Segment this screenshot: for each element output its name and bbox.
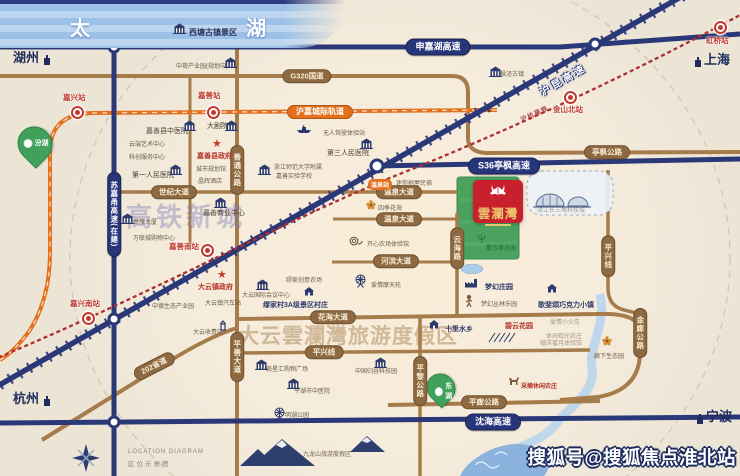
- zjnu-school-line2: 嘉善实验学校: [276, 174, 312, 180]
- gfs-chocolate-town: 歌斐颂巧克力小镇: [538, 302, 594, 309]
- sujiayong-expwy: 苏嘉甬高速(在建): [107, 172, 121, 257]
- shiji-avenue: 世纪大道: [151, 185, 197, 199]
- miujia-village: 缪家村3A级景区村庄: [263, 302, 328, 309]
- donghu-dot-icon: [435, 387, 443, 396]
- four-season-flower-sea-icon: [366, 200, 376, 210]
- shili-watertown-icon: [428, 319, 440, 329]
- ningbo-icon: [696, 414, 704, 424]
- yunhai-road: 云海路: [450, 227, 464, 269]
- shimao-tower-icon: [121, 213, 134, 224]
- lavender-flower-sea: 薰衣草花海: [486, 246, 516, 252]
- resort-watermark: 大云雲瀾灣旅游度假区: [238, 320, 458, 350]
- jiashan-station-label: 嘉善站: [198, 92, 221, 100]
- treehouse-inn: 迷你树屋民宿: [396, 181, 432, 187]
- zjnu-school-line1-icon: [258, 164, 271, 175]
- guigu-tech-park-icon: [374, 357, 387, 368]
- langxia-eco-park: 廊下生态园: [594, 354, 624, 360]
- hujia-intercity-rail: 沪嘉城际轨道: [287, 105, 353, 119]
- sino-german-eco-park: 中德生态产业园: [152, 304, 194, 310]
- third-peoples-hospital: 第三人民医院: [327, 150, 369, 157]
- yunduan-art-center: 云端艺术中心: [129, 142, 165, 148]
- dayun-gov-icon: ★: [217, 270, 227, 281]
- happy-farm-icon: [349, 236, 363, 246]
- shenjiahu-expwy: 申嘉湖高速: [405, 39, 470, 56]
- jiashan-gov-icon: ★: [212, 139, 222, 150]
- fenhu-dot-icon: [24, 138, 33, 147]
- love-ferris-wheel: 爱情摩天轮: [371, 283, 401, 289]
- dream-jungle-park: 梦幻丛林乐园: [481, 302, 517, 308]
- pingli-road: 平黎公路: [413, 356, 427, 406]
- miujia-farm: 缪家创意农场: [286, 278, 322, 284]
- zhonghe-industry-park: 中荷产业园(规划中): [176, 64, 228, 70]
- jinghui-hotel: 晶辉酒店: [198, 179, 222, 185]
- shenhai-expwy: 沈海高速: [465, 414, 521, 431]
- pingshan-avenue: 平善大道: [230, 332, 244, 382]
- pingxing-line-v: 平兴线: [601, 235, 615, 277]
- fengjing-town-icon: [489, 66, 502, 77]
- third-peoples-hospital-icon: [360, 138, 373, 149]
- kechuang-center: 科创服务中心: [129, 155, 165, 161]
- autonomous-driving-station-icon: [296, 125, 312, 134]
- shili-watertown: 十里水乡: [445, 326, 473, 333]
- minghu-park: 明湖公园: [285, 413, 309, 419]
- love-ferris-wheel-icon: [354, 274, 367, 288]
- first-peoples-hospital: 第一人民医院: [132, 172, 174, 179]
- jiashan-station-icon: [207, 106, 220, 119]
- honeymoon-hall: 婚庆蜜月体验馆: [540, 341, 582, 347]
- lotus-moon-icon: [473, 180, 523, 197]
- nanxinghui-mall: 南星汇购物广场: [266, 367, 308, 373]
- picking-farm-icon: [507, 374, 521, 386]
- dayun-bus-station: 大云镇汽车站: [205, 301, 241, 307]
- jinshan-north-station-label: 金山北站: [553, 106, 583, 114]
- jiulongshan-resort-label: 九龙山旅游度假区: [303, 452, 351, 458]
- xitang-scenic-icon: [173, 23, 186, 34]
- s36-tingfeng-expwy: S36亭枫高速: [468, 158, 540, 175]
- hot-spring-stop: 温泉站: [368, 179, 392, 190]
- guigu-tech-park: 中国归谷科技园: [355, 369, 397, 375]
- taihu-lake-label: 太湖: [70, 12, 422, 41]
- dream-manor-icon: [464, 278, 478, 288]
- dayun-conference-center-icon: [256, 279, 269, 290]
- jinlang-road: 金廊公路: [633, 308, 647, 358]
- huzhou-label: 湖州: [13, 52, 39, 65]
- compass-icon: [72, 444, 100, 472]
- zhangjiang-tech-city: 张江长三角科技城: [537, 208, 585, 214]
- jiashan-tcm-hospital: 嘉善县中医院: [146, 128, 188, 135]
- fenhu-label: 汾湖: [35, 138, 49, 148]
- gfs-chocolate-town-icon: [546, 283, 558, 293]
- fengjing-town: 枫泾古镇: [500, 72, 524, 78]
- logo-rule: [485, 224, 511, 226]
- mountain-icon: [240, 436, 385, 466]
- zhonghe-industry-park-icon: [224, 57, 237, 68]
- jiashan-south-station-icon: [201, 244, 214, 257]
- love-train: 爱情小火车: [550, 320, 580, 326]
- dayun-toll-gate-icon: [219, 320, 227, 331]
- jiaxing-south-station-icon: [82, 312, 95, 325]
- dream-jungle-park-icon: [464, 295, 474, 308]
- jiaxing-station-icon: [71, 106, 84, 119]
- jiaxing-south-station-label: 嘉兴南站: [70, 300, 100, 308]
- jiashan-tcm-hospital-icon: [183, 120, 196, 131]
- jinshan-north-station-icon: [564, 91, 577, 104]
- ningbo-label: 宁波: [706, 411, 732, 424]
- pinghu-tcm-hospital-icon: [287, 378, 300, 389]
- biyun-garden-icon: [487, 331, 517, 343]
- hongqiao-station-icon: [714, 21, 727, 34]
- lavender-flower-sea-icon: [476, 231, 487, 244]
- jiashan-business-center: 嘉善商业中心: [203, 210, 245, 217]
- hangzhou-icon: [43, 396, 51, 406]
- g320-road: G320国道: [282, 69, 331, 83]
- jiashan-gov: 嘉善县政府: [197, 153, 232, 160]
- zjnu-school-line1: 浙江师范大学附属: [274, 165, 322, 171]
- huahai-avenue: 花海大道: [310, 310, 356, 324]
- picking-farm: 采摘休闲农庄: [521, 384, 557, 390]
- compass-caption-zh: 区位示意图: [128, 458, 171, 468]
- hangzhou-label: 杭州: [13, 393, 39, 406]
- happy-farm: 开心农场体验馆: [367, 242, 409, 248]
- grand-theatre-icon: [225, 120, 238, 131]
- nanxinghui-mall-icon: [255, 359, 268, 370]
- city-planning-hall: 城市规划馆: [196, 167, 226, 173]
- shanghai-label: 上海: [704, 54, 730, 67]
- minghu-park-icon: [273, 407, 286, 421]
- jiaxing-station-label: 嘉兴站: [63, 94, 86, 102]
- location-map: 太湖 高铁新城 大云雲瀾灣旅游度假区 雲瀾灣 汾湖 东湖 LOCATION DI…: [0, 0, 740, 476]
- four-season-flower-sea: 四季花海: [378, 206, 402, 212]
- biyun-garden: 碧云花园: [505, 323, 533, 330]
- xitang-scenic: 西塘古镇景区: [189, 29, 237, 37]
- project-logo: 雲瀾灣: [473, 180, 523, 223]
- dayun-gov: 大云镇政府: [198, 284, 233, 291]
- jiashan-business-center-icon: [214, 197, 227, 208]
- hongqiao-station-label: 虹桥站: [706, 37, 729, 45]
- jiashan-south-station-label: 嘉善南站: [169, 243, 199, 251]
- first-peoples-hospital-icon: [169, 164, 182, 175]
- shantong-road: 善通公路: [230, 145, 244, 195]
- wenquan-avenue-2: 温泉大道: [376, 212, 422, 226]
- compass-caption-en: LOCATION DIAGRAM: [128, 449, 204, 455]
- dayun-conference-center: 大云国际会议中心: [242, 293, 290, 299]
- pingxing-line-h: 平兴线: [305, 345, 344, 359]
- autonomous-driving-station: 无人驾驶体验站: [323, 131, 365, 137]
- project-name: 雲瀾灣: [473, 203, 523, 222]
- shimao-tower: 世茂大厦: [133, 220, 157, 226]
- sohu-watermark: 搜狐号@搜狐焦点淮北站: [527, 444, 736, 470]
- miujia-village-icon: [303, 286, 315, 296]
- pond-icon: [461, 264, 483, 274]
- shanghai-icon: [694, 57, 702, 67]
- huzhou-icon: [43, 55, 51, 65]
- pinghu-tcm-hospital: 平湖市中医院: [294, 389, 330, 395]
- langxia-eco-park-icon: [602, 336, 612, 346]
- hebin-avenue: 河滨大道: [373, 254, 419, 268]
- dream-manor: 梦幻庄园: [485, 284, 513, 291]
- tingfeng-road: 亭枫公路: [584, 145, 630, 159]
- pinglang-road: 平廊公路: [461, 395, 507, 409]
- leisure-farm: 休闲观光农庄: [546, 334, 582, 340]
- wanliancheng-mall: 万联城购物中心: [133, 236, 175, 242]
- donghu-label: 东湖: [445, 381, 458, 401]
